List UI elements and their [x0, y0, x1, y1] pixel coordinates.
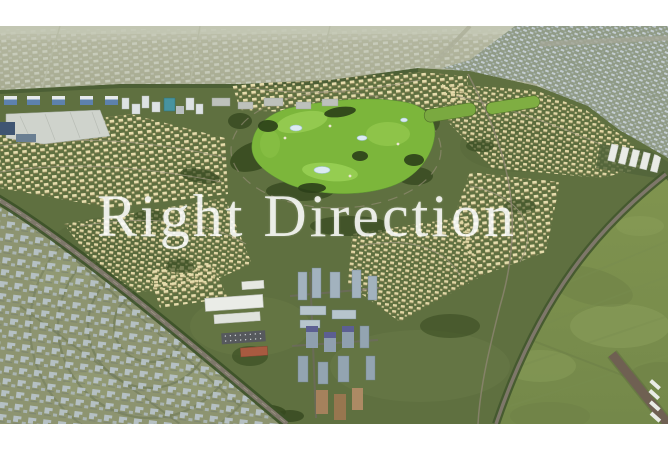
screenshot-canvas: Right Direction — [0, 0, 668, 452]
red-roof-building — [240, 346, 268, 357]
navy-building — [0, 122, 15, 135]
gray-block — [176, 106, 184, 114]
teal-glass-building — [164, 98, 175, 111]
listing-photo: Right Direction — [0, 26, 668, 424]
steel-building — [16, 134, 36, 142]
aerial-render — [0, 26, 668, 424]
